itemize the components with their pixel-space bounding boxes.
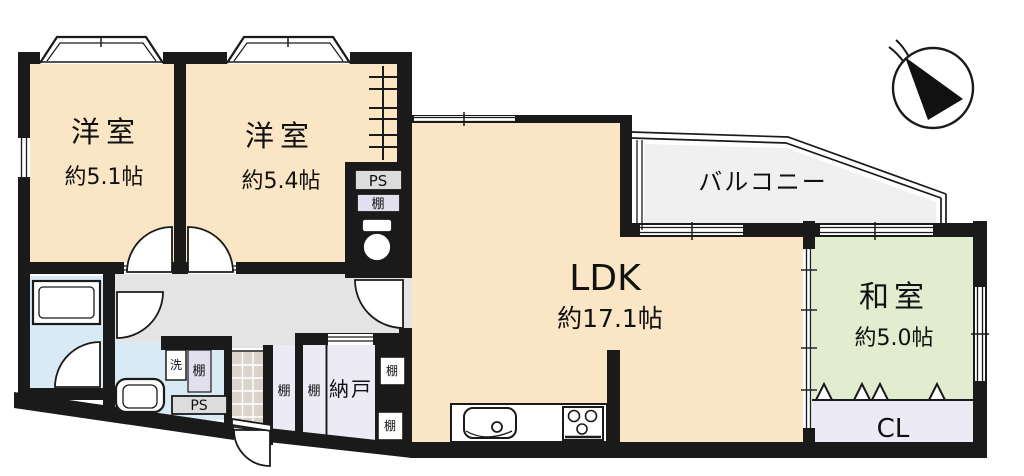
washitsu-size: 約5.0帖 — [855, 326, 934, 351]
ps-label: PS — [190, 398, 207, 414]
shelf-label: 棚 — [307, 384, 320, 399]
shelf-label: 棚 — [386, 363, 398, 378]
entry-door-icon — [234, 430, 270, 466]
closet-name: CL — [877, 414, 910, 444]
shelf-label: 棚 — [277, 384, 290, 399]
washitsu-name: 和室 — [859, 280, 929, 315]
bathtub-icon — [33, 281, 100, 324]
floor-plan: 洋室 約5.1帖 洋室 約5.4帖 LDK 約17.1帖 バルコニー 和室 約5… — [0, 0, 1024, 476]
kitchen-counter — [451, 404, 607, 442]
balcony-name: バルコニー — [698, 168, 828, 196]
laundry-label: 洗 — [170, 358, 182, 372]
bedroom2-name: 洋室 — [245, 119, 315, 153]
compass-north-icon — [889, 40, 973, 128]
ldk-name: LDK — [569, 258, 642, 299]
ldk-size: 約17.1帖 — [557, 304, 663, 333]
bedroom1-name: 洋室 — [71, 115, 141, 149]
genkan-tiles — [232, 351, 263, 430]
toilet-icon — [362, 219, 392, 261]
bedroom1-size: 約5.1帖 — [65, 165, 144, 190]
nando-name: 納戸 — [329, 377, 373, 401]
stove-icon — [563, 407, 603, 440]
shelf-label: 棚 — [384, 418, 396, 433]
shelf-label: 棚 — [371, 197, 384, 212]
ps-label: PS — [369, 172, 388, 190]
washitsu-floor — [812, 235, 973, 400]
shelf-label: 棚 — [192, 364, 205, 379]
washing-machine-icon — [116, 379, 164, 412]
kitchen-sink-icon — [464, 408, 516, 438]
bedroom2-size: 約5.4帖 — [242, 169, 321, 194]
